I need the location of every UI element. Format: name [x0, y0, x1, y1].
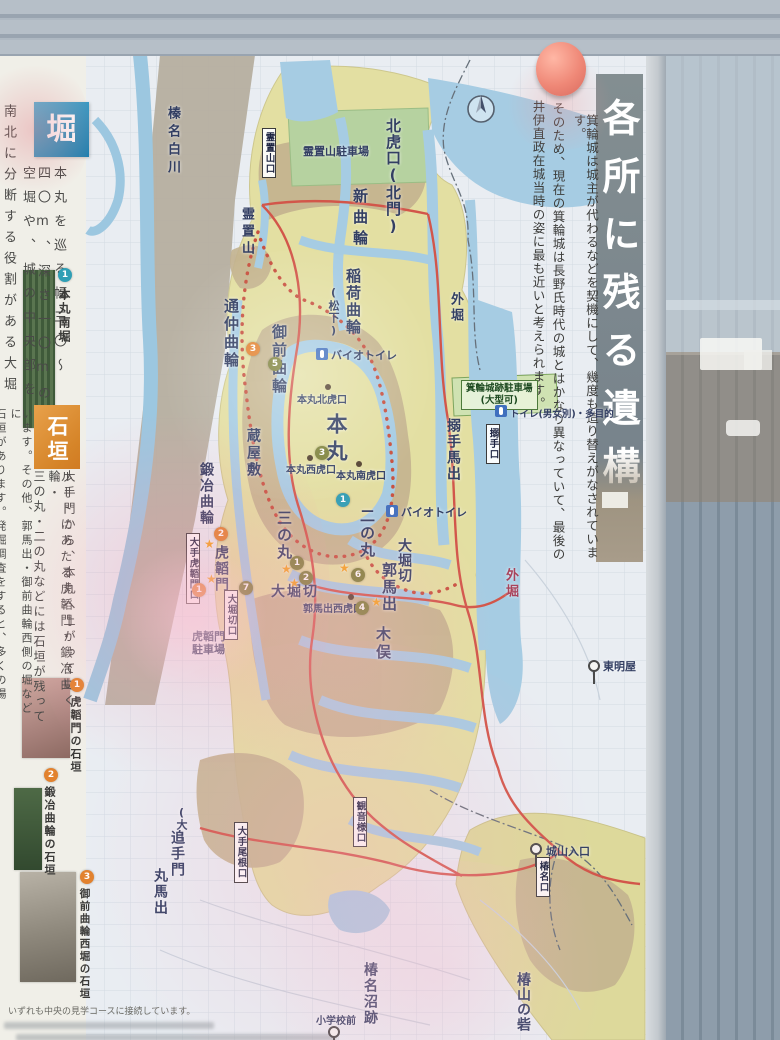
gatebox-karamete-guchi: 搦手口: [486, 424, 500, 464]
trail-point-dot: [325, 384, 331, 390]
label-sotobori-east: 外堀: [504, 568, 517, 600]
map-marker-olive-4: 4: [355, 601, 369, 615]
ishigaki-text-line5: 石垣があります。発掘調査をすると、多くの場: [0, 408, 6, 708]
label-honmaru-nishi-koguchi: 本丸西虎口: [286, 461, 336, 476]
marker-ishigaki-2: 2: [44, 768, 58, 782]
sidebar-hori-header: 堀: [34, 102, 89, 157]
label-reichiyama-parking: 霊置山駐車場: [303, 143, 369, 159]
busstop-icon: [530, 843, 542, 867]
map-marker-olive-2: 2: [299, 571, 313, 585]
label-tsubakiyama-toride: 椿山の砦: [516, 972, 530, 1032]
gatebox-oohorikiri-guchi: 大堀切口: [224, 590, 238, 640]
wall-right-panels: [648, 0, 780, 1040]
marker-ishigaki-3: 3: [80, 870, 94, 884]
label-kaku-umadashi: 郭馬出: [381, 562, 396, 613]
ishigaki-text-line3: 三の丸・二の丸などには石垣が残って: [33, 470, 45, 732]
label-kimata: 木俣: [375, 626, 390, 662]
toilet-icon: [386, 505, 398, 517]
map-marker-olive-5: 5: [268, 357, 282, 371]
star-icon: ★: [371, 596, 382, 608]
gatebox-reichiyama-guchi: 霊置山口: [262, 128, 276, 178]
label-honmaru: 本丸: [325, 413, 346, 467]
ishigaki-text-line2: ルートにあたる虎韜門・鍛冶曲輪・: [48, 470, 72, 720]
wall-top-panels: [0, 0, 780, 56]
map-marker-olive-1: 1: [290, 556, 304, 570]
illegible-text-bar: [16, 1034, 336, 1040]
toilet-icon: [316, 348, 328, 360]
label-kaji-kuruwa: 鍛冶曲輪: [199, 462, 213, 526]
trail-point-dot: [307, 455, 313, 461]
gatebox-kannonsama-guchi: 観音様口: [353, 797, 367, 847]
glass-reflection: [596, 452, 643, 562]
label-sotobori-north: 外堀: [449, 292, 462, 324]
caption-kaji-kuruwa-ishigaki: 鍛冶曲輪の石垣: [44, 786, 55, 877]
label-shin-kuruwa: 新曲輪: [352, 188, 367, 251]
caption-honmaru-south-moat: 本丸南堀: [58, 288, 70, 344]
map-marker-teal-1: 1: [336, 493, 350, 507]
photo-of-castle-map-sign: 堀 本丸を巡る幅三〇〜 四〇m、深さ一〇mの 空堀や、城の中央部を 南北に分断す…: [0, 0, 780, 1040]
trail-point-dot: [348, 594, 354, 600]
page-title: 各所に残る遺構: [599, 98, 637, 504]
label-matsushita: (松下): [328, 286, 339, 338]
caption-kotoumon-ishigaki: 虎韜門の石垣: [70, 696, 81, 774]
hori-text-line4: 南北に分断する役割がある大堀: [2, 104, 15, 420]
map-marker-olive-6: 6: [351, 568, 365, 582]
parking-box-line1: 箕輪城跡駐車場: [466, 383, 533, 395]
reflection-sky: [658, 50, 780, 310]
reflection-building: [744, 350, 772, 370]
trail-point-dot: [356, 461, 362, 467]
label-inari-kuruwa: 稲荷曲輪: [345, 268, 360, 336]
label-toorinaka-kuruwa: 通仲曲輪: [223, 298, 238, 370]
sidebar-ishigaki-header: 石垣: [34, 405, 80, 469]
photo-kaji-kuruwa-ishigaki: [14, 788, 42, 870]
reflection-car: [726, 420, 760, 436]
label-reichiyama: 霊置山: [240, 207, 253, 258]
label-oohorikiri-east: 大堀切: [397, 538, 411, 583]
busstop-icon: [588, 660, 600, 684]
map-marker-orange-1: 1: [192, 583, 206, 597]
label-toumyouya: 東明屋: [603, 658, 636, 674]
label-kaku-umadashi-nishi: 郭馬出西虎口: [303, 600, 363, 615]
hori-text-line3: 空堀や、城の中央部を: [21, 166, 34, 422]
marker-hori-1: 1: [58, 268, 72, 282]
label-tsubakina-numa: 椿名沼跡: [363, 962, 377, 1026]
busstop-icon: [328, 1026, 340, 1040]
label-haruna-shirakawa: 榛名白川: [166, 106, 179, 178]
compass-icon: [462, 90, 500, 128]
label-kotoumon-parking-2: 駐車場: [192, 641, 225, 657]
map-marker-olive-3: 3: [315, 446, 329, 460]
label-honmaru-kita-koguchi: 本丸北虎口: [297, 391, 347, 406]
intro-text-col1: 箕輪城は城主が代わるなどを契機にして、幾度も造り替えがなされています。: [572, 114, 597, 566]
star-icon: ★: [339, 562, 350, 574]
label-honmaru-minami-koguchi: 本丸南虎口: [336, 467, 386, 482]
pink-magnet: [536, 42, 586, 96]
label-shiroyama-iriguchi: 城山入口: [546, 843, 590, 859]
label-kita-koguchi: 北虎口(北門): [385, 118, 400, 236]
toilet-icon: [495, 405, 507, 417]
label-otemon: 追手門: [170, 830, 184, 878]
star-icon: ★: [204, 538, 215, 550]
ishigaki-text-line4: います。その他、郭馬出・御前曲輪西側の堀などに: [10, 408, 32, 720]
title-banner: 各所に残る遺構: [596, 74, 643, 562]
star-icon: ★: [206, 573, 217, 585]
hori-text-line2: 四〇m、深さ一〇mの: [36, 166, 49, 422]
intro-text-col2: そのため、現在の箕輪城は長野氏時代の城とはかなり異なっていて、最後の: [551, 102, 564, 562]
caption-gozen-kuruwa-ishigaki: 御前曲輪西堀の石垣: [79, 888, 90, 1001]
label-bio-toilet-2: バイオトイレ: [401, 504, 467, 520]
gatebox-oote-one-guchi: 大手尾根口: [234, 822, 248, 883]
label-bio-toilet-1: バイオトイレ: [331, 347, 397, 363]
map-marker-orange-2: 2: [214, 527, 228, 541]
photo-gozen-kuruwa-ishigaki: [20, 872, 76, 982]
label-maru-umadashi: 丸馬出: [153, 868, 167, 916]
label-sannomaru: 三の丸: [276, 510, 291, 561]
frame-edge: [646, 0, 666, 1040]
label-shougakkou-mae: 小学校前: [316, 1012, 356, 1027]
illegible-text-bar: [4, 1022, 214, 1029]
label-kurayashiki: 蔵屋敷: [246, 428, 260, 479]
map-marker-olive-7: 7: [239, 581, 253, 595]
reflection-ground: [658, 352, 780, 502]
label-ninomaru: 二の丸: [359, 508, 374, 559]
map-marker-orange-3: 3: [246, 342, 260, 356]
marker-ishigaki-1: 1: [70, 678, 84, 692]
label-karamete-umadashi: 搦手馬出: [446, 418, 460, 482]
sidebar-note: いずれも中央の見学コースに接続しています。: [8, 1004, 195, 1017]
